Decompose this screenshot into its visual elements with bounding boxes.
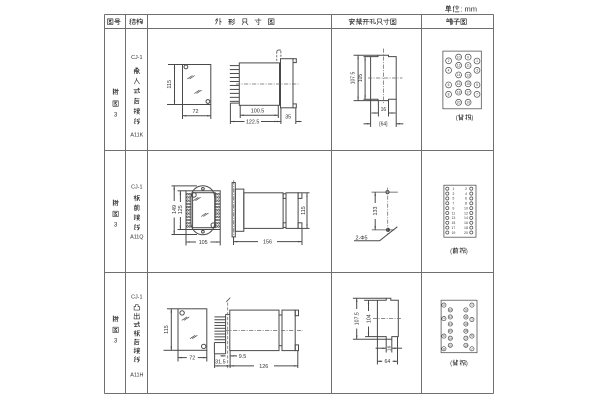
svg-text:15: 15 [466,82,470,86]
svg-text:11: 11 [464,315,467,319]
svg-text:125: 125 [178,205,184,214]
svg-text:1: 1 [452,187,454,191]
svg-text:64: 64 [385,359,391,365]
svg-text:CJ-1: CJ-1 [131,295,142,301]
svg-text:9: 9 [452,206,454,210]
svg-text:122.5: 122.5 [246,119,260,125]
svg-text:35: 35 [285,115,291,121]
svg-text:2: 2 [448,59,450,63]
svg-text:3: 3 [114,338,118,345]
svg-text:1: 1 [476,59,478,63]
svg-text:12: 12 [449,315,453,319]
svg-text:2: 2 [465,187,467,191]
svg-text:10: 10 [464,206,468,210]
svg-text:5: 5 [452,197,454,201]
svg-text:): ) [471,116,473,122]
svg-text:11: 11 [452,211,456,215]
svg-text:126: 126 [259,364,268,370]
svg-text:107.5: 107.5 [351,72,357,85]
svg-text:): ) [466,361,468,367]
svg-text:105: 105 [358,74,364,83]
svg-text:17: 17 [466,90,470,94]
svg-text:133: 133 [373,207,379,216]
svg-text:19: 19 [451,231,455,235]
svg-text:3: 3 [114,111,118,118]
svg-text:6: 6 [448,83,450,87]
svg-text:16: 16 [387,345,393,351]
svg-text:100.5: 100.5 [251,108,265,114]
svg-text:7: 7 [476,93,478,97]
svg-text:16: 16 [464,221,468,225]
svg-text:(: ( [450,361,452,367]
svg-text:156: 156 [263,240,272,246]
svg-text:A11K: A11K [130,132,143,138]
svg-text::: : [460,6,462,13]
svg-text:17: 17 [464,336,468,340]
svg-text:16: 16 [449,329,453,333]
svg-text:8: 8 [465,202,467,206]
svg-text:3: 3 [452,192,454,196]
svg-text:105: 105 [199,240,208,246]
svg-text:20: 20 [449,343,453,347]
svg-text:3: 3 [114,222,118,229]
svg-text:6: 6 [465,197,467,201]
svg-text:115: 115 [164,325,170,334]
svg-text:8: 8 [448,93,450,97]
svg-text:A11Q: A11Q [130,235,143,241]
svg-text:18: 18 [449,336,453,340]
svg-text:13: 13 [466,73,470,77]
svg-text:10: 10 [457,55,461,59]
svg-text:3: 3 [476,69,478,73]
svg-text:149: 149 [172,205,178,214]
svg-text:16: 16 [381,107,387,113]
svg-text:11: 11 [466,64,470,68]
svg-text:19: 19 [466,101,470,105]
svg-text:13: 13 [451,216,455,220]
svg-text:9: 9 [467,55,469,59]
svg-text:5: 5 [476,83,478,87]
svg-text:13: 13 [464,322,468,326]
svg-text:[64]: [64] [379,121,388,127]
svg-text:CJ-1: CJ-1 [131,55,142,61]
svg-text:115: 115 [301,206,307,215]
svg-text:18: 18 [464,226,468,230]
svg-text:9.5: 9.5 [239,354,247,360]
svg-text:104: 104 [366,314,372,323]
svg-text:4: 4 [448,69,450,73]
svg-text:14: 14 [457,73,461,77]
svg-text:31.5: 31.5 [215,360,226,366]
svg-text:72: 72 [193,109,199,115]
svg-text:107.5: 107.5 [355,312,361,325]
svg-text:15: 15 [451,221,455,225]
svg-text:10: 10 [449,308,453,312]
svg-text:12: 12 [457,64,461,68]
svg-text:20: 20 [464,231,468,235]
svg-text:16: 16 [457,82,461,86]
svg-text:): ) [466,249,468,255]
svg-text:(: ( [456,116,458,122]
svg-text:A11H: A11H [130,372,143,378]
svg-text:72: 72 [189,355,195,361]
svg-text:14: 14 [464,216,468,220]
svg-text:12: 12 [464,211,468,215]
svg-text:CJ-1: CJ-1 [131,185,142,191]
svg-text:(: ( [450,249,452,255]
svg-text:14: 14 [449,322,453,326]
svg-text:20: 20 [457,101,461,105]
svg-text:19: 19 [464,343,468,347]
svg-text:15: 15 [464,329,468,333]
svg-text:17: 17 [451,226,455,230]
svg-text:18: 18 [457,90,461,94]
svg-text:mm: mm [465,4,478,13]
svg-text:4: 4 [465,192,467,196]
svg-text:7: 7 [452,202,454,206]
svg-text:115: 115 [167,80,173,89]
